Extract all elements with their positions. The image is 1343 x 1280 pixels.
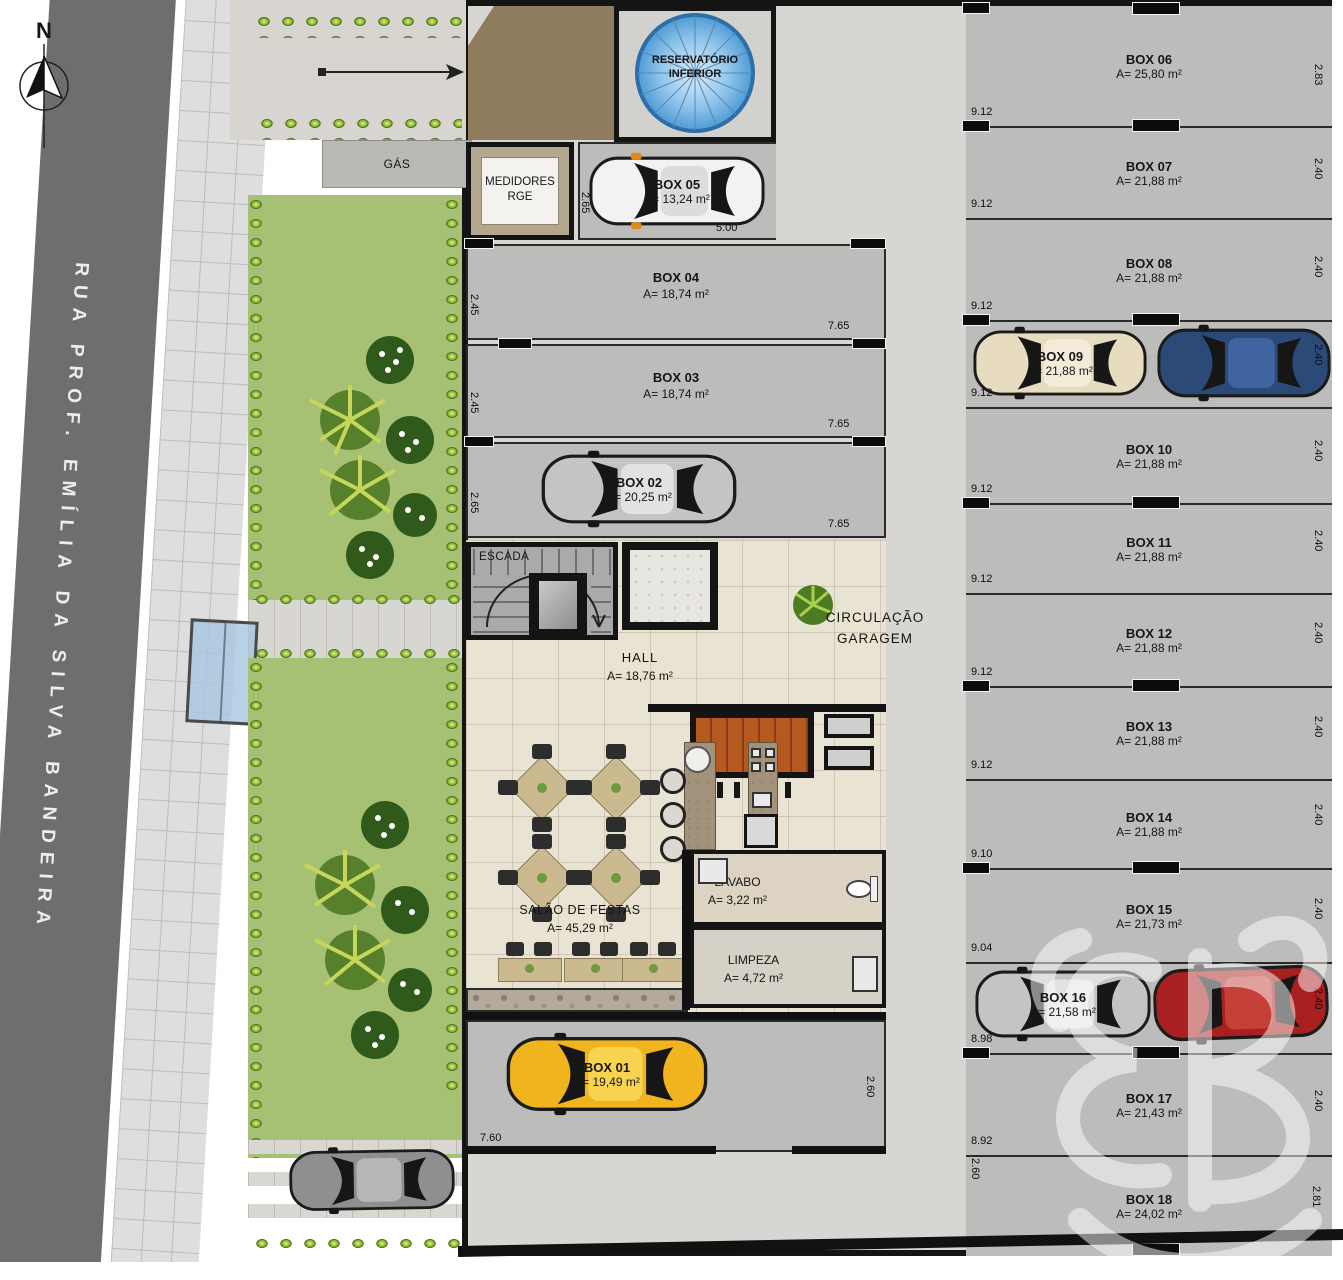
box10-area: A= 21,88 m² <box>1116 457 1182 471</box>
box14-dim-h: 2.40 <box>1312 804 1324 825</box>
wall-tab <box>464 238 494 249</box>
hedge-left-top <box>244 195 266 600</box>
box13-name: BOX 13 <box>1126 719 1172 734</box>
car-blue-box09 <box>1156 324 1332 402</box>
stair-room: ESCADA <box>466 542 618 640</box>
meters-label-2: RGE <box>508 191 533 203</box>
garden-plants-bottom <box>290 790 450 1070</box>
ramp-arrow <box>318 60 464 84</box>
reservoir-label-1: RESERVATÓRIO <box>652 54 738 66</box>
party-table <box>570 742 662 834</box>
box08-name: BOX 08 <box>1126 256 1172 271</box>
wall-tab <box>962 680 990 692</box>
box06-name: BOX 06 <box>1126 52 1172 67</box>
builder-watermark <box>1000 900 1343 1280</box>
box04-name: BOX 04 <box>468 270 884 287</box>
toilet <box>846 880 872 898</box>
kitchen-shelf-1 <box>824 714 874 738</box>
box14-name: BOX 14 <box>1126 810 1172 825</box>
box06-dim-w: 9.12 <box>971 106 992 118</box>
cooktop-burner-2 <box>765 748 775 758</box>
box02-dim-w: 7.65 <box>828 518 849 530</box>
limpeza-label: LIMPEZA <box>728 953 779 967</box>
wall-tab <box>850 238 886 249</box>
box06-dim-h: 2.83 <box>1312 64 1324 85</box>
box07-dim-h: 2.40 <box>1312 158 1324 179</box>
wall-tab <box>962 314 990 326</box>
cooktop-burner-3 <box>751 762 761 772</box>
reservoir-room: RESERVATÓRIO INFERIOR <box>614 6 776 142</box>
parking-box-13: BOX 13 A= 21,88 m² <box>966 686 1332 779</box>
box01-bottom-wall-left <box>466 1146 716 1154</box>
box08-area: A= 21,88 m² <box>1116 271 1182 285</box>
car-gray-driveway <box>287 1145 456 1216</box>
box01-bottom-wall-right <box>792 1146 886 1154</box>
toilet-tank <box>870 876 878 902</box>
box08-dim-h: 2.40 <box>1312 256 1324 277</box>
limpeza-tank <box>852 956 878 992</box>
wall-tab <box>1132 496 1180 509</box>
box11-name: BOX 11 <box>1126 535 1172 550</box>
box12-dim-w: 9.12 <box>971 666 992 678</box>
wall-tab <box>852 338 886 349</box>
stool-2 <box>660 802 686 828</box>
box14-dim-w: 9.10 <box>971 848 992 860</box>
lavabo-area: A= 3,22 m² <box>708 893 767 909</box>
box18-left-dim: 2.60 <box>969 1158 981 1179</box>
parking-box-08: BOX 08 A= 21,88 m² <box>966 218 1332 320</box>
counter-sink <box>752 792 772 808</box>
circulation-label-2: GARAGEM <box>837 631 913 646</box>
box16-name: BOX 16 <box>1040 990 1086 1005</box>
box03-name: BOX 03 <box>468 370 884 387</box>
hedge-bottom <box>250 1234 462 1258</box>
parking-box-04: BOX 04 A= 18,74 m² <box>466 244 886 340</box>
wall-tab <box>962 120 990 132</box>
lavabo-wall <box>682 850 690 1010</box>
parking-box-03: BOX 03 A= 18,74 m² <box>466 344 886 438</box>
box04-dim-w: 7.65 <box>828 320 849 332</box>
hedge-top <box>252 12 462 38</box>
box11-area: A= 21,88 m² <box>1116 550 1182 564</box>
wall-tab <box>464 436 494 447</box>
hedge-gas <box>255 114 462 140</box>
box03-area: A= 18,74 m² <box>468 387 884 403</box>
box07-area: A= 21,88 m² <box>1116 174 1182 188</box>
salao-area: A= 45,29 m² <box>500 921 660 937</box>
lavabo-room: LAVABO A= 3,22 m² <box>690 850 886 926</box>
box03-dim-h: 2.45 <box>468 392 480 413</box>
island-sink <box>684 746 711 773</box>
wall-tab <box>962 1047 990 1059</box>
wall-tab <box>962 497 990 509</box>
kitchen-wall <box>648 704 886 712</box>
box07-dim-w: 9.12 <box>971 198 992 210</box>
buffet-table <box>564 942 628 984</box>
box11-dim-w: 9.12 <box>971 573 992 585</box>
box09-dim-h: 2.40 <box>1312 344 1324 365</box>
north-label: N <box>12 18 76 44</box>
parking-box-12: BOX 12 A= 21,88 m² <box>966 593 1332 686</box>
box09-name: BOX 09 <box>1037 349 1083 364</box>
box06-area: A= 25,80 m² <box>1116 67 1182 81</box>
box13-dim-h: 2.40 <box>1312 716 1324 737</box>
box03-dim-w: 7.65 <box>828 418 849 430</box>
wall-tab <box>1132 119 1180 132</box>
box04-dim-h: 2.45 <box>468 294 480 315</box>
garden-plants-top <box>290 330 450 580</box>
parking-box-07: BOX 07 A= 21,88 m² <box>966 126 1332 218</box>
parking-box-14: BOX 14 A= 21,88 m² <box>966 779 1332 868</box>
wall-tab <box>852 436 886 447</box>
hall-area: A= 18,76 m² <box>560 669 720 685</box>
reservoir-label-2: INFERIOR <box>669 68 722 80</box>
box10-dim-h: 2.40 <box>1312 440 1324 461</box>
box12-area: A= 21,88 m² <box>1116 641 1182 655</box>
cooktop-burner-1 <box>751 748 761 758</box>
wall-tab <box>1132 2 1180 15</box>
box01-top-wall <box>466 1012 886 1020</box>
car-silver-box16: BOX 16 A= 21,58 m² <box>974 966 1152 1042</box>
wall-tab <box>962 862 990 874</box>
car-yellow-box01: BOX 01 A= 19,49 m² <box>505 1032 709 1116</box>
box02-name: BOX 02 <box>616 475 662 490</box>
box05-area: A= 13,24 m² <box>644 192 710 206</box>
floor-plan: RUA PROF. EMÍLIA DA SILVA BANDEIRA N GÁS <box>0 0 1343 1280</box>
salao-label: SALÃO DE FESTAS <box>519 903 640 917</box>
gas-slab: GÁS <box>322 140 472 188</box>
kitchen-shelf-2 <box>824 746 874 770</box>
elevator-shaft <box>622 542 718 630</box>
lavabo-sink <box>698 858 728 884</box>
garage-ramp <box>468 6 616 140</box>
hall-label: HALL <box>622 650 659 665</box>
wall-tab <box>1132 313 1180 326</box>
box02-dim-h: 2.65 <box>468 492 480 513</box>
limpeza-area: A= 4,72 m² <box>724 971 783 987</box>
hedge-left-bottom <box>244 658 266 1158</box>
box10-dim-w: 9.12 <box>971 483 992 495</box>
circulation-label-1: CIRCULAÇÃO <box>826 610 925 625</box>
box01-dim-w: 7.60 <box>480 1132 501 1144</box>
box15-dim-w: 9.04 <box>971 942 992 954</box>
box07-name: BOX 07 <box>1126 159 1172 174</box>
street-name: RUA PROF. EMÍLIA DA SILVA BANDEIRA <box>30 262 92 934</box>
box09-area: A= 21,88 m² <box>1027 364 1093 378</box>
buffet-table <box>622 942 686 984</box>
box12-name: BOX 12 <box>1126 626 1172 641</box>
wall-tab <box>1132 861 1180 874</box>
box12-dim-h: 2.40 <box>1312 622 1324 643</box>
box10-name: BOX 10 <box>1126 442 1172 457</box>
box01-name: BOX 01 <box>584 1060 630 1075</box>
cooktop-burner-4 <box>765 762 775 772</box>
car-silver-box02: BOX 02 A= 20,25 m² <box>540 450 738 528</box>
stair-label: ESCADA <box>479 551 529 563</box>
meters-label-1: MEDIDORES <box>485 176 555 188</box>
box16-area: A= 21,58 m² <box>1030 1005 1096 1019</box>
car-white-box05: BOX 05 A= 13,24 m² <box>588 152 766 230</box>
compass-icon <box>12 44 76 148</box>
limpeza-room: LIMPEZA A= 4,72 m² <box>690 926 886 1008</box>
wall-tab <box>962 2 990 14</box>
parking-box-06: BOX 06 A= 25,80 m² <box>966 6 1332 126</box>
north-compass: N <box>12 18 76 148</box>
box11-dim-h: 2.40 <box>1312 530 1324 551</box>
box14-area: A= 21,88 m² <box>1116 825 1182 839</box>
fridge <box>744 814 778 848</box>
box13-dim-w: 9.12 <box>971 759 992 771</box>
wall-tab <box>1132 679 1180 692</box>
gas-label: GÁS <box>323 157 471 173</box>
car-beige-box09: BOX 09 A= 21,88 m² <box>972 326 1148 400</box>
box01-dim-h: 2.60 <box>864 1076 876 1097</box>
wall-tab <box>498 338 532 349</box>
parking-box-11: BOX 11 A= 21,88 m² <box>966 503 1332 593</box>
pebble-strip <box>466 988 688 1012</box>
box17-dim-w: 8.92 <box>971 1135 992 1147</box>
box05-name: BOX 05 <box>654 177 700 192</box>
meters-room: MEDIDORES RGE <box>466 142 574 240</box>
parking-box-10: BOX 10 A= 21,88 m² <box>966 407 1332 503</box>
box01-area: A= 19,49 m² <box>574 1075 640 1089</box>
box04-area: A= 18,74 m² <box>468 287 884 303</box>
walkway-shrubs-top <box>250 590 460 608</box>
box08-dim-w: 9.12 <box>971 300 992 312</box>
buffet-table <box>498 942 562 984</box>
box13-area: A= 21,88 m² <box>1116 734 1182 748</box>
box02-area: A= 20,25 m² <box>606 490 672 504</box>
stool-1 <box>660 768 686 794</box>
